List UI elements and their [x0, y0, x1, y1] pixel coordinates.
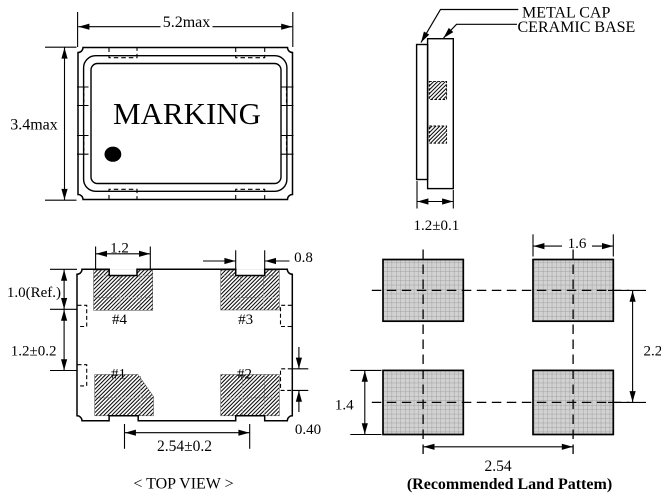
svg-text:3.4max: 3.4max — [10, 117, 58, 134]
svg-text:1.4: 1.4 — [335, 398, 354, 414]
svg-text:#3: #3 — [238, 312, 253, 328]
svg-text:#2: #2 — [237, 367, 252, 383]
svg-text:1.2±0.1: 1.2±0.1 — [414, 218, 460, 234]
svg-text:1.2: 1.2 — [110, 240, 129, 256]
svg-text:1.2±0.2: 1.2±0.2 — [11, 344, 57, 360]
svg-text:CERAMIC BASE: CERAMIC BASE — [518, 19, 636, 36]
svg-text:0.40: 0.40 — [295, 422, 321, 438]
svg-text:< TOP VIEW >: < TOP VIEW > — [133, 476, 233, 493]
svg-text:0.8: 0.8 — [294, 250, 313, 266]
svg-text:2.54±0.2: 2.54±0.2 — [157, 438, 212, 455]
svg-text:#4: #4 — [112, 312, 128, 328]
svg-text:#1: #1 — [111, 367, 126, 383]
svg-text:1.0(Ref.): 1.0(Ref.) — [7, 285, 61, 301]
svg-text:2.54: 2.54 — [484, 458, 511, 475]
svg-text:2.2: 2.2 — [644, 344, 661, 360]
svg-text:1.6: 1.6 — [568, 236, 587, 252]
svg-text:MARKING: MARKING — [113, 96, 261, 131]
svg-text:5.2max: 5.2max — [163, 14, 211, 31]
svg-text:(Recommended Land Pattem): (Recommended Land Pattem) — [407, 476, 612, 493]
